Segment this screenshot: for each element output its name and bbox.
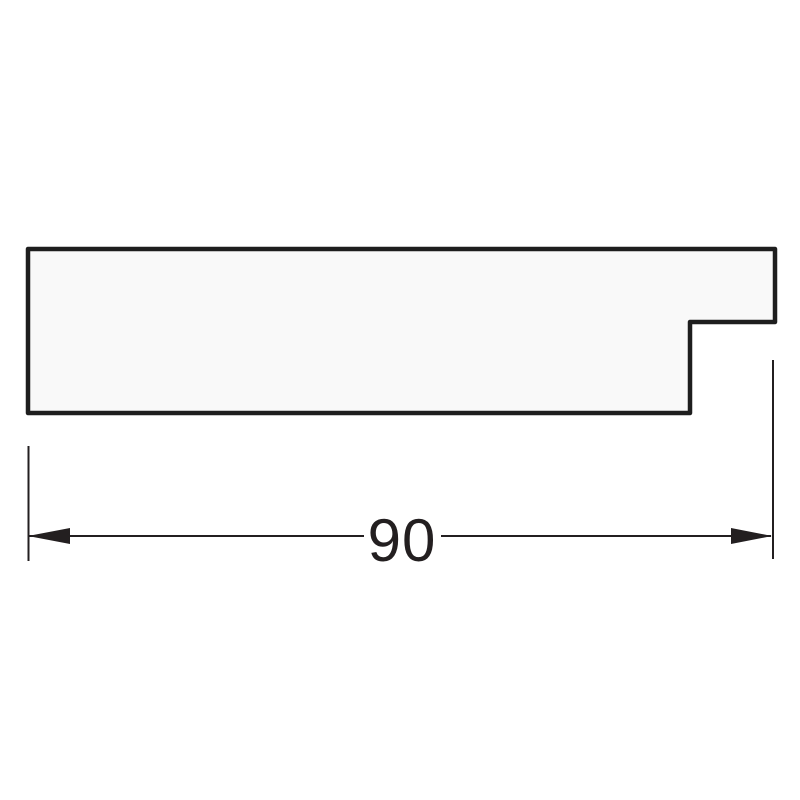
dimension-arrow-left-icon: [28, 528, 70, 544]
drawing-canvas: 90: [0, 0, 800, 800]
technical-drawing: 90: [0, 0, 800, 800]
profile-cross-section: [28, 249, 775, 413]
dimension-label: 90: [368, 507, 437, 574]
dimension-arrow-right-icon: [731, 528, 772, 544]
